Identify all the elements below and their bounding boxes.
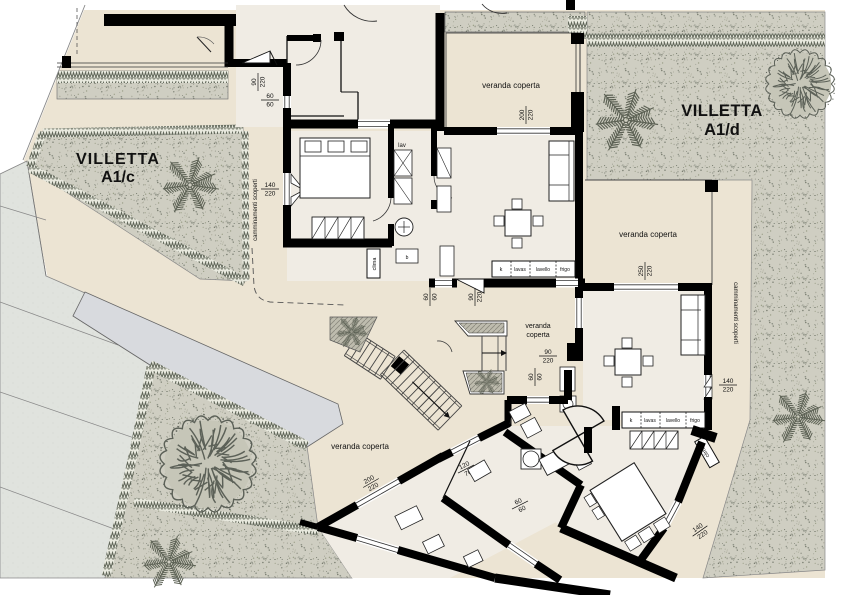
svg-text:A1/d: A1/d bbox=[704, 121, 740, 139]
svg-text:140: 140 bbox=[723, 378, 734, 385]
svg-text:lavas: lavas bbox=[644, 418, 656, 424]
svg-text:220: 220 bbox=[647, 265, 654, 276]
svg-text:b: b bbox=[406, 255, 409, 261]
svg-text:veranda: veranda bbox=[525, 323, 550, 330]
svg-text:60: 60 bbox=[266, 93, 274, 100]
svg-text:k: k bbox=[500, 267, 503, 273]
svg-text:lav: lav bbox=[398, 143, 406, 149]
svg-text:veranda coperta: veranda coperta bbox=[331, 442, 389, 451]
svg-text:frigo: frigo bbox=[690, 418, 700, 424]
svg-text:220: 220 bbox=[477, 291, 484, 302]
svg-text:220: 220 bbox=[723, 387, 734, 394]
svg-text:250: 250 bbox=[638, 265, 645, 276]
svg-text:90: 90 bbox=[468, 293, 475, 301]
svg-text:60: 60 bbox=[423, 293, 430, 301]
svg-text:60: 60 bbox=[537, 373, 544, 381]
svg-text:220: 220 bbox=[265, 191, 276, 198]
svg-text:90: 90 bbox=[544, 349, 552, 356]
svg-text:k: k bbox=[630, 418, 633, 424]
svg-text:camminamenti scoperti: camminamenti scoperti bbox=[253, 179, 259, 241]
svg-text:clima: clima bbox=[372, 257, 378, 271]
svg-text:200: 200 bbox=[519, 109, 526, 120]
svg-text:coperta: coperta bbox=[526, 332, 549, 339]
svg-text:A1/c: A1/c bbox=[101, 169, 135, 186]
svg-text:140: 140 bbox=[265, 182, 276, 189]
svg-text:veranda coperta: veranda coperta bbox=[619, 230, 677, 239]
svg-text:lavello: lavello bbox=[666, 418, 680, 424]
svg-text:60: 60 bbox=[432, 293, 439, 301]
svg-text:frigo: frigo bbox=[560, 267, 570, 273]
svg-text:220: 220 bbox=[543, 358, 554, 365]
svg-text:VILLETTA: VILLETTA bbox=[681, 102, 763, 120]
svg-text:220: 220 bbox=[260, 76, 267, 87]
svg-text:220: 220 bbox=[528, 109, 535, 120]
svg-text:lavas: lavas bbox=[514, 267, 526, 273]
svg-text:camminamenti scoperti: camminamenti scoperti bbox=[732, 282, 738, 344]
svg-text:veranda coperta: veranda coperta bbox=[482, 81, 540, 90]
svg-text:60: 60 bbox=[528, 373, 535, 381]
svg-text:90: 90 bbox=[251, 78, 258, 86]
svg-text:VILLETTA: VILLETTA bbox=[76, 151, 160, 168]
svg-text:lavello: lavello bbox=[536, 267, 550, 273]
svg-text:60: 60 bbox=[266, 102, 274, 109]
